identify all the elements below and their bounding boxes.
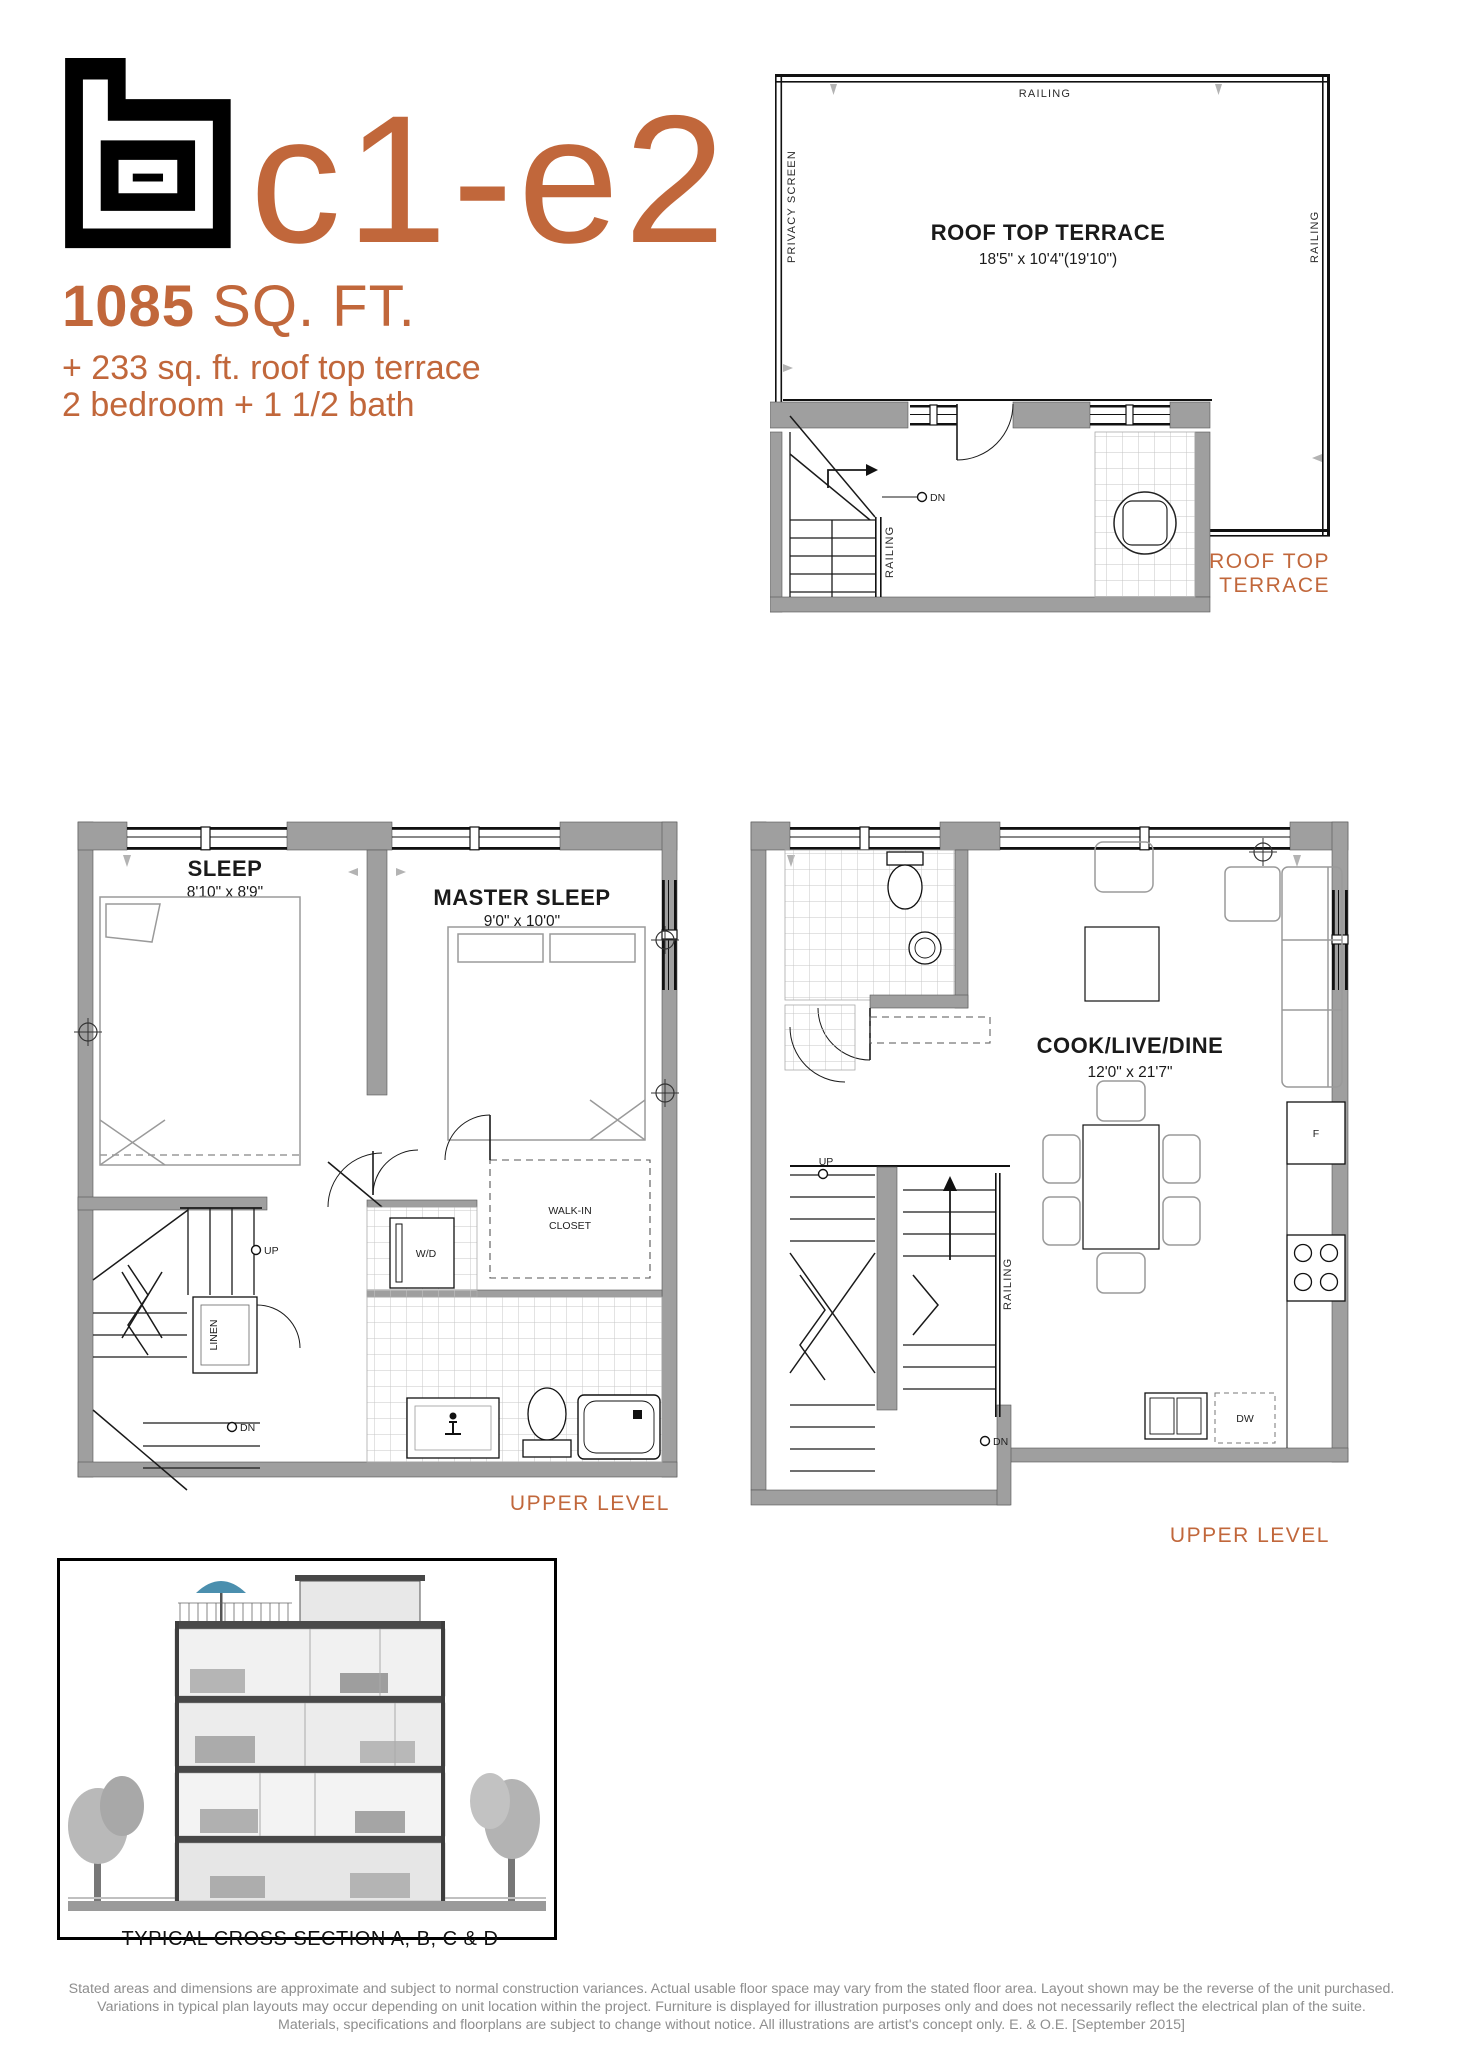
linen-label: LINEN (208, 1320, 220, 1351)
b-spiral-logo (58, 58, 236, 254)
stairs-down (790, 416, 882, 597)
hall-landing (785, 1005, 990, 1082)
disclaimer: Stated areas and dimensions are approxim… (30, 1980, 1433, 2034)
electrical-symbol (1249, 838, 1277, 866)
cross-section-image (57, 1558, 557, 1940)
dn-label: DN (240, 1422, 255, 1434)
fridge: F (1287, 1102, 1345, 1164)
cross-section-rendering (60, 1561, 554, 1937)
stove (1287, 1235, 1345, 1301)
area-unit: SQ. FT. (195, 274, 416, 339)
cook-live-dine-dims: 12'0" x 21'7" (1087, 1064, 1172, 1081)
walkin-label-1: WALK-IN (548, 1205, 591, 1217)
kitchen: F DW (1145, 1102, 1345, 1448)
bathroom (367, 1297, 662, 1462)
living-level-drawing: COOK/LIVE/DINE 12'0" x 21'7" (745, 805, 1355, 1515)
dining-table (1083, 1125, 1159, 1249)
fridge-label: F (1313, 1128, 1319, 1140)
bed (448, 927, 645, 1140)
dn-marker: DN (882, 492, 945, 504)
disclaimer-line-2: Variations in typical plan layouts may o… (30, 1998, 1433, 2016)
window (1090, 405, 1170, 426)
pedestal-sink (909, 932, 941, 964)
roof-terrace-drawing: RAILING PRIVACY SCREEN RAILING ROOF TOP … (770, 68, 1340, 623)
cook-live-dine-label: COOK/LIVE/DINE (1037, 1033, 1224, 1058)
door-arc (957, 404, 1013, 460)
area-line: 1085 SQ. FT. (62, 278, 416, 336)
sleep-room-dims: 8'10" x 8'9" (187, 884, 263, 901)
privacy-screen-label: PRIVACY SCREEN (786, 150, 798, 263)
umbrella-icon (196, 1581, 246, 1624)
subtitle-terrace: + 233 sq. ft. roof top terrace (62, 350, 481, 387)
living-level-plan: COOK/LIVE/DINE 12'0" x 21'7" (745, 805, 1355, 1520)
bathtub (578, 1395, 660, 1459)
dining-set (1043, 1081, 1200, 1293)
terrace-railing-lines (775, 74, 1330, 537)
stairs (790, 1165, 1010, 1471)
floorplan-page: c1-e2 1085 SQ. FT. + 233 sq. ft. roof to… (0, 0, 1463, 2063)
unit-subtitle: + 233 sq. ft. roof top terrace 2 bedroom… (62, 350, 481, 424)
roof-terrace-room-label: ROOF TOP TERRACE (931, 220, 1166, 245)
roof-railing (178, 1603, 292, 1621)
unit-code: c1-e2 (250, 88, 730, 270)
cross-section-caption: TYPICAL CROSS SECTION A, B, C & D (60, 1928, 560, 1951)
coat-closet (870, 1017, 990, 1043)
dn-label: DN (993, 1436, 1008, 1448)
area-value: 1085 (62, 274, 195, 339)
door-arc (328, 1150, 418, 1207)
subtitle-bedbath: 2 bedroom + 1 1/2 bath (62, 387, 481, 424)
bedroom-level-plan: SLEEP 8'10" x 8'9" MASTER SLEEP 9'0" x 1… (70, 810, 685, 1515)
vanity-sink (407, 1398, 499, 1458)
window (910, 405, 957, 426)
bed (100, 897, 300, 1165)
coffee-table (1085, 927, 1159, 1001)
roof-terrace-caption: ROOF TOP TERRACE (1100, 550, 1330, 598)
walkin-label-2: CLOSET (549, 1220, 592, 1232)
dw-label: DW (1236, 1413, 1254, 1425)
kitchen-sink (1145, 1393, 1207, 1439)
living-level-caption: UPPER LEVEL (1100, 1524, 1330, 1548)
dn-label: DN (930, 492, 945, 504)
laundry-closet: W/D (367, 1207, 477, 1297)
railing-right-label: RAILING (1309, 211, 1321, 263)
builder-logo-icon (58, 58, 236, 254)
disclaimer-line-3: Materials, specifications and floorplans… (30, 2016, 1433, 2034)
railing-stair-label: RAILING (884, 526, 896, 578)
dn-marker: DN (228, 1422, 256, 1434)
tree (68, 1776, 144, 1903)
building-cutaway (175, 1575, 445, 1901)
wd-label: W/D (416, 1248, 437, 1260)
dn-marker: DN (981, 1436, 1009, 1448)
dimension-ticks (123, 855, 406, 876)
railing-label: RAILING (1002, 1258, 1014, 1310)
dishwasher: DW (1215, 1393, 1275, 1443)
railing-top-label: RAILING (1019, 88, 1071, 100)
window (392, 827, 560, 850)
toilet (887, 852, 923, 909)
bedroom-level-drawing: SLEEP 8'10" x 8'9" MASTER SLEEP 9'0" x 1… (70, 810, 685, 1510)
sofa (1225, 867, 1342, 1087)
linen-closet: LINEN (193, 1297, 300, 1373)
up-label: UP (819, 1156, 834, 1168)
up-marker: UP (252, 1245, 279, 1257)
up-label: UP (264, 1245, 279, 1257)
tree (470, 1773, 540, 1902)
window (790, 827, 940, 850)
master-room-label: MASTER SLEEP (433, 885, 610, 910)
roof-terrace-dims: 18'5" x 10'4"(19'10") (979, 251, 1117, 268)
ground (68, 1901, 546, 1911)
roof-terrace-plan: RAILING PRIVACY SCREEN RAILING ROOF TOP … (770, 68, 1340, 628)
bedroom-level-caption: UPPER LEVEL (440, 1492, 670, 1516)
window (127, 827, 287, 850)
sleep-room-label: SLEEP (188, 856, 263, 881)
disclaimer-line-1: Stated areas and dimensions are approxim… (30, 1980, 1433, 1998)
window (1000, 827, 1290, 850)
